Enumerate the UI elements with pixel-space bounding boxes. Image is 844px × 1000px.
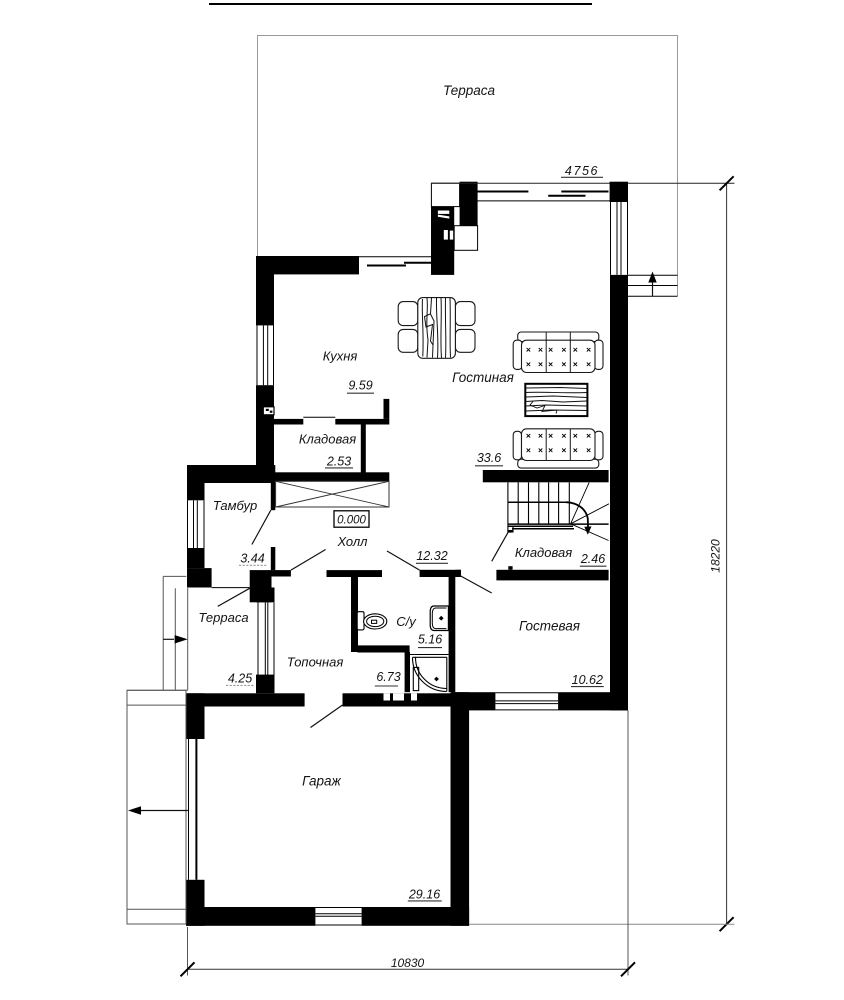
svg-text:29.16: 29.16 bbox=[408, 888, 440, 902]
svg-text:Тамбур: Тамбур bbox=[213, 498, 258, 513]
svg-text:Терраса: Терраса bbox=[198, 610, 248, 625]
svg-text:10.62: 10.62 bbox=[572, 673, 603, 687]
svg-text:С/у: С/у bbox=[396, 614, 417, 629]
svg-text:18220: 18220 bbox=[709, 539, 723, 573]
svg-text:Гостиная: Гостиная bbox=[452, 370, 514, 385]
svg-text:Кладовая: Кладовая bbox=[299, 432, 356, 447]
svg-text:Гараж: Гараж bbox=[302, 774, 341, 789]
svg-text:Холл: Холл bbox=[337, 534, 369, 549]
svg-text:2.46: 2.46 bbox=[580, 552, 605, 566]
svg-text:5.16: 5.16 bbox=[418, 633, 442, 647]
svg-text:33.6: 33.6 bbox=[477, 451, 501, 465]
svg-text:3.44: 3.44 bbox=[240, 552, 264, 566]
svg-text:4.25: 4.25 bbox=[228, 672, 252, 686]
svg-text:2.53: 2.53 bbox=[326, 455, 351, 469]
svg-text:Кухня: Кухня bbox=[323, 349, 358, 364]
svg-text:4756: 4756 bbox=[565, 164, 599, 178]
svg-text:6.73: 6.73 bbox=[376, 670, 400, 684]
svg-text:Кладовая: Кладовая bbox=[515, 545, 572, 560]
svg-text:Топочная: Топочная bbox=[287, 655, 344, 670]
svg-text:10830: 10830 bbox=[391, 956, 425, 970]
svg-text:0.000: 0.000 bbox=[337, 515, 366, 527]
svg-text:9.59: 9.59 bbox=[348, 379, 372, 393]
svg-text:12.32: 12.32 bbox=[416, 549, 447, 563]
svg-text:Гостевая: Гостевая bbox=[519, 619, 580, 634]
svg-text:Терраса: Терраса bbox=[443, 83, 496, 98]
